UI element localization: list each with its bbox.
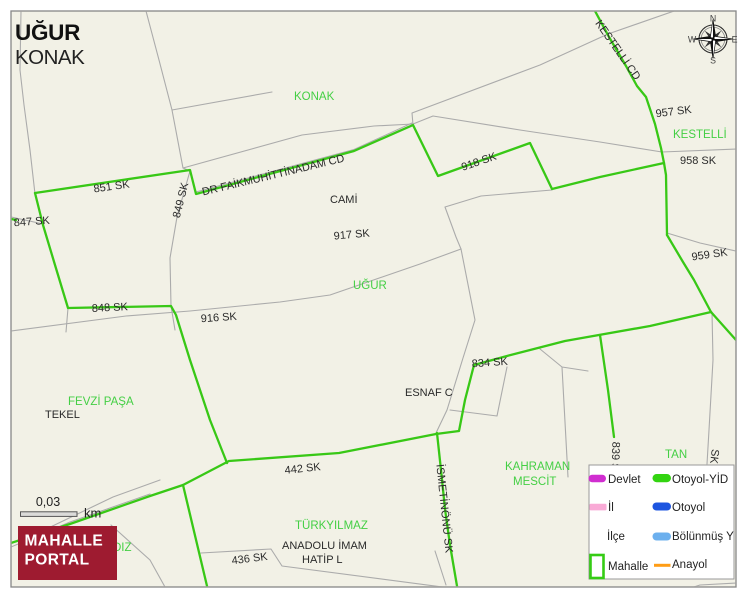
svg-text:HATİP L: HATİP L xyxy=(302,553,343,566)
svg-text:848 SK: 848 SK xyxy=(92,301,129,315)
svg-text:İlçe: İlçe xyxy=(607,530,625,543)
svg-text:0,03: 0,03 xyxy=(36,495,60,509)
svg-text:PORTAL: PORTAL xyxy=(25,552,90,569)
svg-text:FEVZİ PAŞA: FEVZİ PAŞA xyxy=(68,395,134,408)
svg-text:KONAK: KONAK xyxy=(15,46,85,69)
svg-text:958 SK: 958 SK xyxy=(680,155,717,167)
svg-text:W: W xyxy=(688,35,697,45)
svg-text:CAMİ: CAMİ xyxy=(330,193,358,206)
svg-text:Otoyol: Otoyol xyxy=(672,502,705,514)
svg-text:Devlet: Devlet xyxy=(608,474,641,486)
svg-text:916 SK: 916 SK xyxy=(200,311,237,326)
svg-text:km: km xyxy=(84,506,101,521)
svg-text:SK: SK xyxy=(707,448,721,465)
svg-text:Bölünmüş Y: Bölünmüş Y xyxy=(672,531,734,543)
svg-text:847 SK: 847 SK xyxy=(13,215,50,230)
svg-text:KAHRAMAN: KAHRAMAN xyxy=(505,461,570,473)
svg-text:İl: İl xyxy=(608,501,614,514)
svg-text:UĞUR: UĞUR xyxy=(15,20,80,45)
svg-text:N: N xyxy=(710,14,716,24)
svg-text:Mahalle: Mahalle xyxy=(608,561,648,573)
svg-text:TEKEL: TEKEL xyxy=(45,409,80,421)
svg-text:UĞUR: UĞUR xyxy=(353,279,387,292)
svg-text:E: E xyxy=(732,35,738,45)
svg-text:S: S xyxy=(710,56,716,66)
svg-text:TAN: TAN xyxy=(665,449,687,461)
svg-text:KESTELLİ: KESTELLİ xyxy=(673,128,727,141)
svg-text:ANADOLU İMAM: ANADOLU İMAM xyxy=(282,539,367,552)
svg-text:TÜRKYILMAZ: TÜRKYILMAZ xyxy=(295,520,368,532)
svg-text:834 SK: 834 SK xyxy=(471,356,508,371)
svg-text:MAHALLE: MAHALLE xyxy=(25,533,104,550)
svg-text:Anayol: Anayol xyxy=(672,559,707,571)
svg-text:Otoyol-YİD: Otoyol-YİD xyxy=(672,473,728,486)
svg-text:ESNAF C: ESNAF C xyxy=(405,387,453,399)
svg-text:MESCİT: MESCİT xyxy=(513,475,556,488)
svg-text:KONAK: KONAK xyxy=(294,91,335,103)
